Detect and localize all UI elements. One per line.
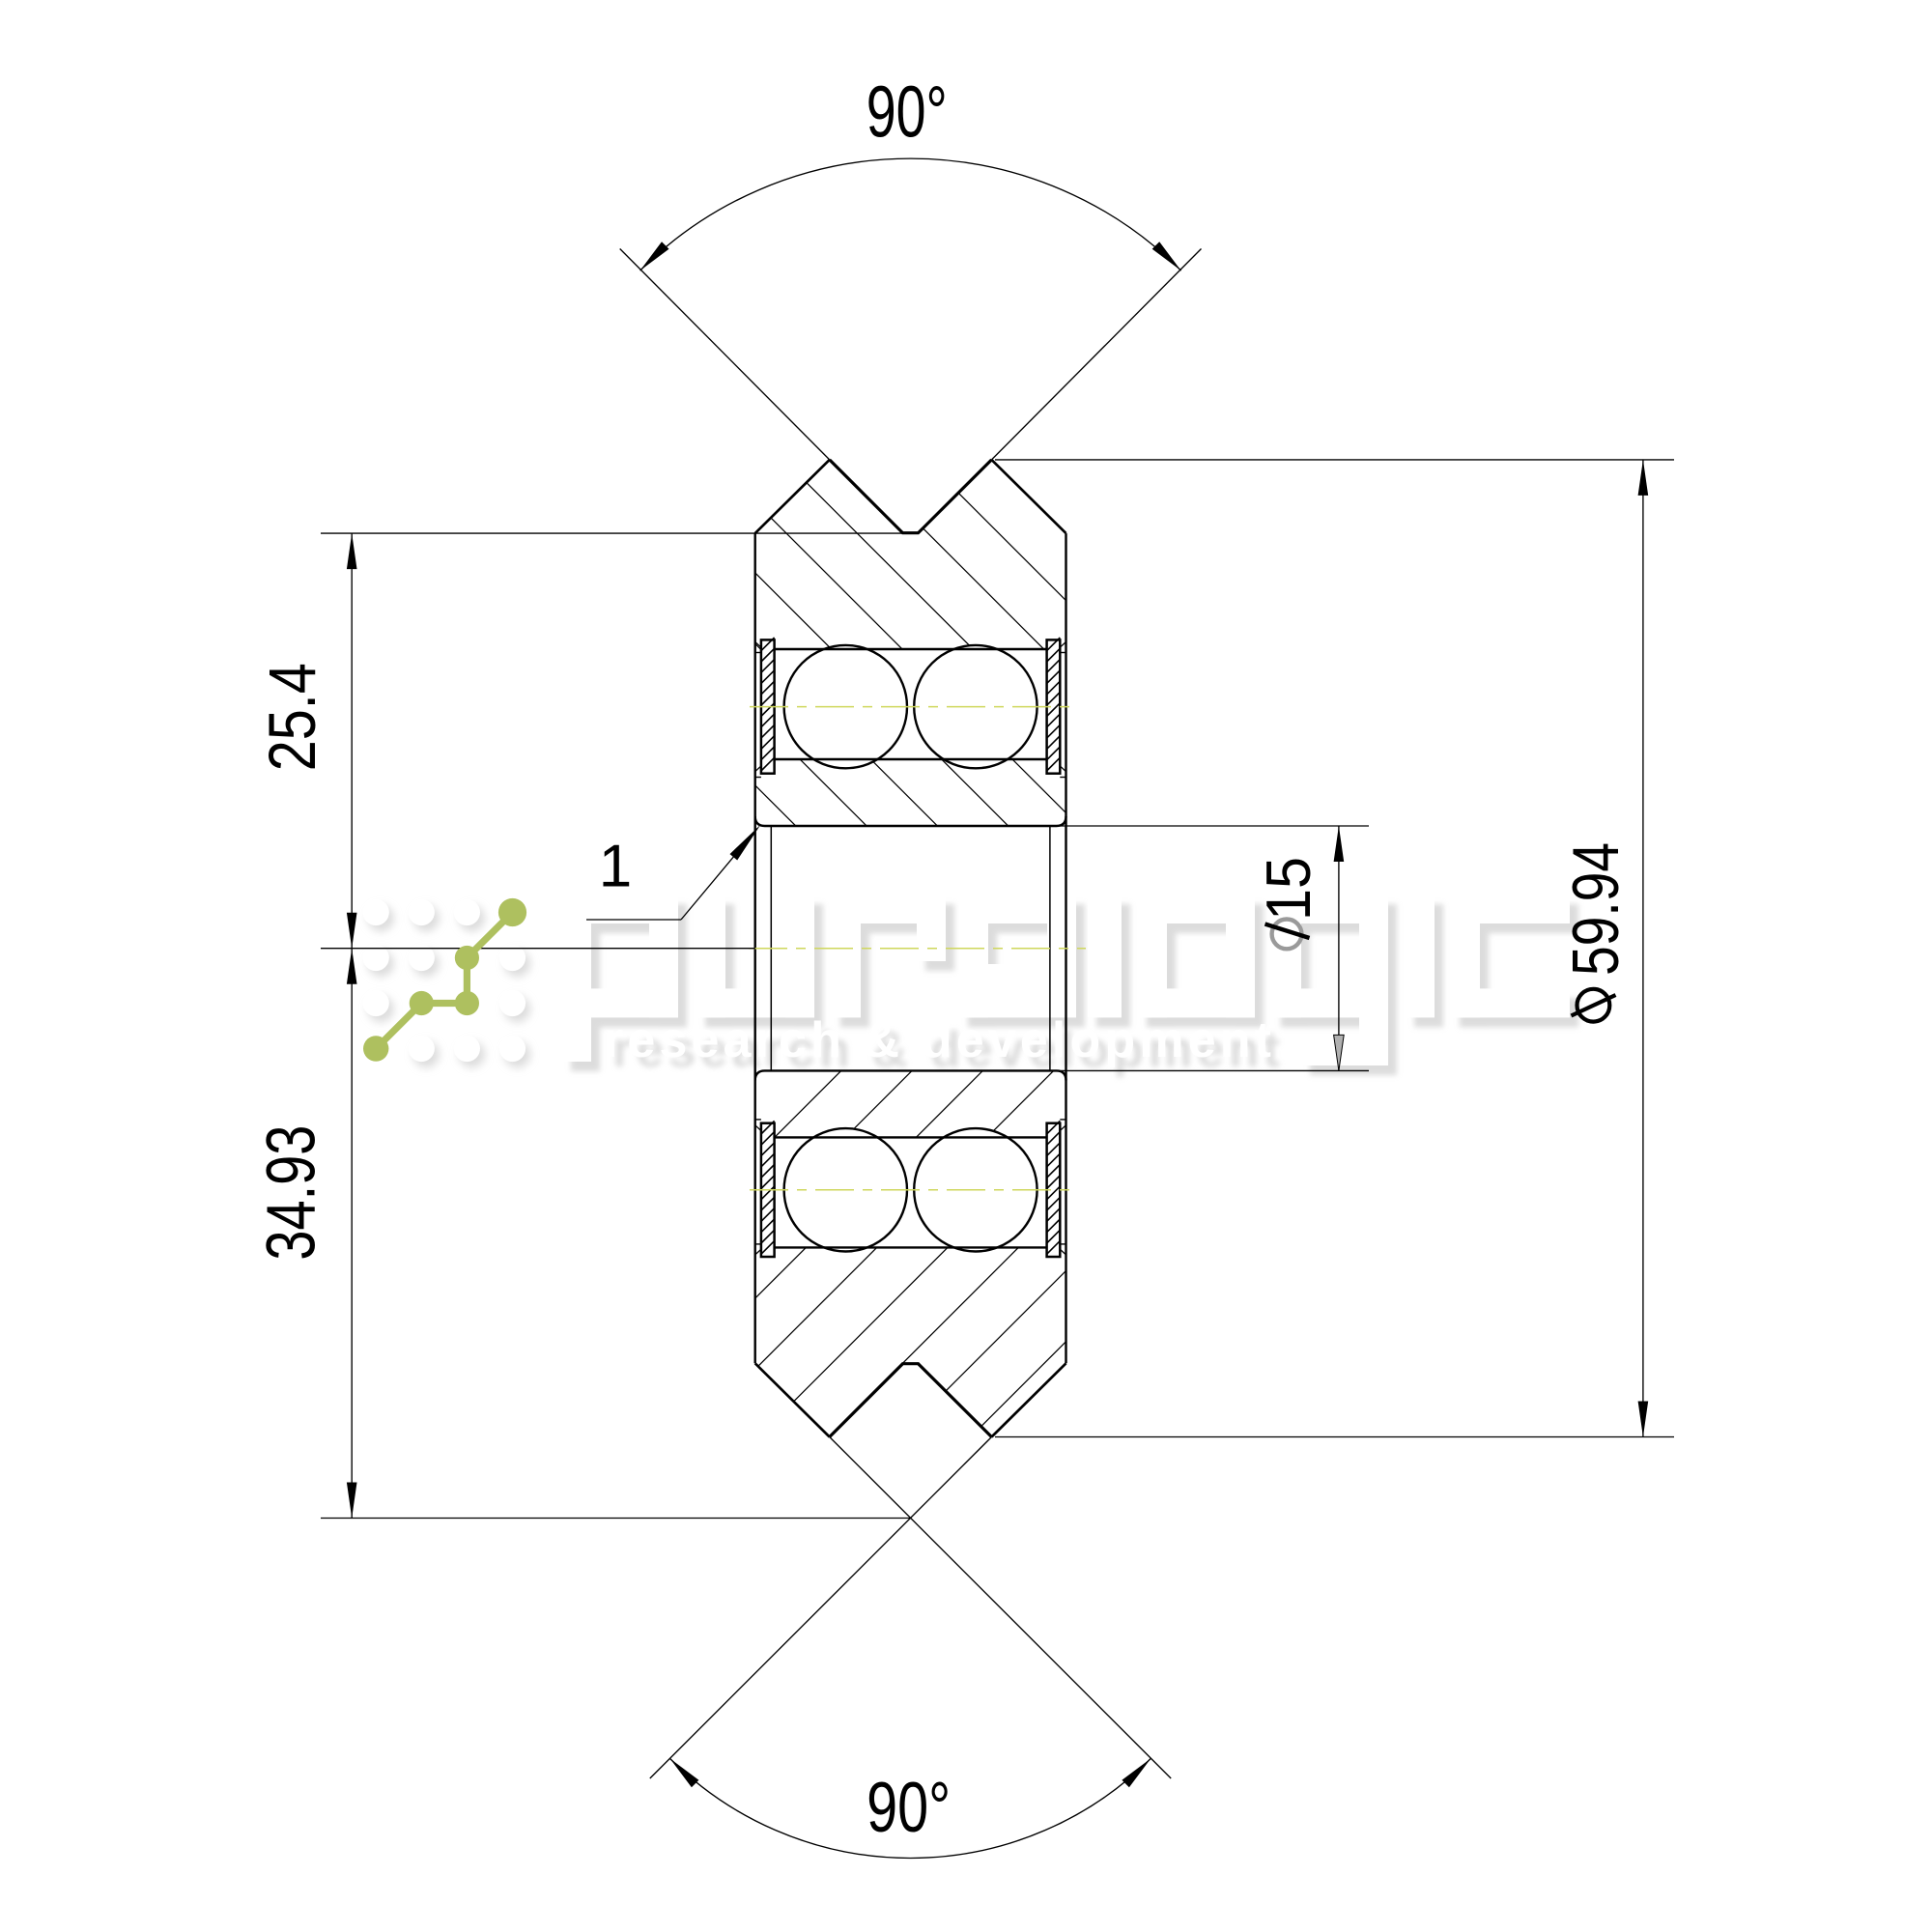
svg-text:1: 1: [599, 834, 632, 900]
svg-text:25.4: 25.4: [255, 663, 329, 771]
svg-text:90°: 90°: [867, 71, 948, 153]
svg-text:34.93: 34.93: [254, 1125, 330, 1261]
svg-text:15: 15: [1253, 857, 1323, 921]
svg-text:90°: 90°: [867, 1769, 951, 1847]
svg-text:59.94: 59.94: [1559, 842, 1633, 976]
svg-text:research & development: research & development: [604, 1012, 1273, 1068]
